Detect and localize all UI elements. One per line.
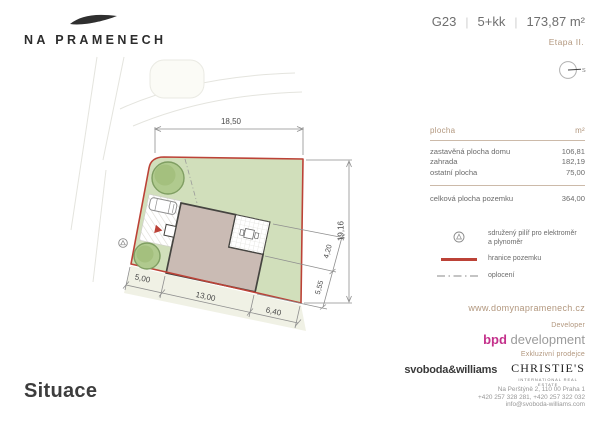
address-line: Na Perštýně 2, 110 00 Praha 1	[430, 386, 585, 394]
legend-label: hranice pozemku	[488, 255, 541, 264]
unit-code: G23	[432, 14, 457, 29]
table-row: zastavěná plocha domu 106,81	[430, 147, 585, 157]
compass-north-label: S	[582, 68, 586, 74]
broker-heading: Exkluzivní prodejce	[430, 351, 585, 358]
legend-item: sdružený pilíř pro elektroměr a plynoměr	[430, 230, 585, 247]
broker-address: Na Perštýně 2, 110 00 Praha 1 +420 257 3…	[430, 386, 585, 409]
tree-icon	[134, 243, 160, 269]
col-unit: m²	[575, 126, 585, 135]
plot-boundary-line-icon	[430, 255, 488, 261]
table-row: ostatní plocha 75,00	[430, 168, 585, 178]
utility-pillar-icon	[119, 239, 128, 248]
website-link[interactable]: www.domynapramenech.cz	[430, 303, 585, 313]
row-value: 75,00	[566, 168, 585, 178]
compass-icon: S	[552, 57, 588, 85]
separator: |	[465, 15, 468, 29]
email-line[interactable]: info@svoboda-williams.com	[430, 401, 585, 409]
legend-label: sdružený pilíř pro elektroměr a plynoměr	[488, 230, 577, 247]
unit-layout: 5+kk	[478, 14, 506, 29]
row-value: 106,81	[562, 147, 585, 157]
developer-heading: Developer	[430, 322, 585, 329]
unit-header: G23 | 5+kk | 173,87 m²	[432, 14, 585, 29]
developer-logo-rest: development	[511, 332, 585, 347]
brochure-page: NA PRAMENECH G23 | 5+kk | 173,87 m² Etap…	[0, 0, 600, 424]
christies-wordmark: CHRISTIE'S	[511, 361, 585, 376]
dim-right: 19,16	[337, 220, 346, 241]
brand-logo: NA PRAMENECH	[24, 33, 166, 47]
total-label: celková plocha pozemku	[430, 194, 513, 203]
site-plan: 18,50 19,16 4,20 5,55 5,00 13,00 6,40	[60, 50, 400, 340]
entrance-step	[164, 224, 176, 237]
broker-logos: svoboda&williams CHRISTIE'S INTERNATIONA…	[430, 361, 585, 387]
developer-block: Developer bpd development	[430, 322, 585, 347]
legend-item: oplocení	[430, 272, 585, 281]
areas-table: plocha m² zastavěná plocha domu 106,81 z…	[430, 126, 585, 203]
legend-label-line: a plynoměr	[488, 239, 523, 246]
row-label: ostatní plocha	[430, 168, 477, 178]
christies-logo: CHRISTIE'S INTERNATIONAL REAL ESTATE	[511, 361, 585, 387]
dim-top: 18,50	[221, 117, 242, 126]
legend-label: oplocení	[488, 272, 514, 281]
utility-pillar-icon	[430, 230, 488, 243]
svoboda-williams-logo: svoboda&williams	[404, 361, 497, 376]
terrace	[229, 215, 270, 255]
legend-item: hranice pozemku	[430, 255, 585, 264]
developer-logo-accent: bpd	[483, 332, 507, 347]
areas-table-header: plocha m²	[430, 126, 585, 141]
page-title: Situace	[24, 380, 97, 403]
legend-label-line: sdružený pilíř pro elektroměr	[488, 230, 577, 237]
row-label: zastavěná plocha domu	[430, 147, 510, 157]
tree-icon	[152, 162, 184, 194]
row-label: zahrada	[430, 157, 457, 167]
table-total-row: celková plocha pozemku 364,00	[430, 185, 585, 203]
table-row: zahrada 182,19	[430, 157, 585, 167]
row-value: 182,19	[562, 157, 585, 167]
dim-house-side: 5,55	[313, 279, 325, 295]
col-plocha: plocha	[430, 126, 455, 135]
separator: |	[514, 15, 517, 29]
unit-area: 173,87 m²	[526, 14, 585, 29]
stage-label: Etapa II.	[549, 37, 584, 47]
dim-terrace-side: 4,20	[321, 243, 333, 259]
developer-logo: bpd development	[430, 332, 585, 347]
plan-legend: sdružený pilíř pro elektroměr a plynoměr…	[430, 230, 585, 288]
fence-dash-dot-icon	[430, 272, 488, 279]
phone-line: +420 257 328 281, +420 257 322 032	[430, 394, 585, 402]
total-value: 364,00	[562, 194, 585, 203]
brand-swoosh-icon	[68, 12, 120, 30]
